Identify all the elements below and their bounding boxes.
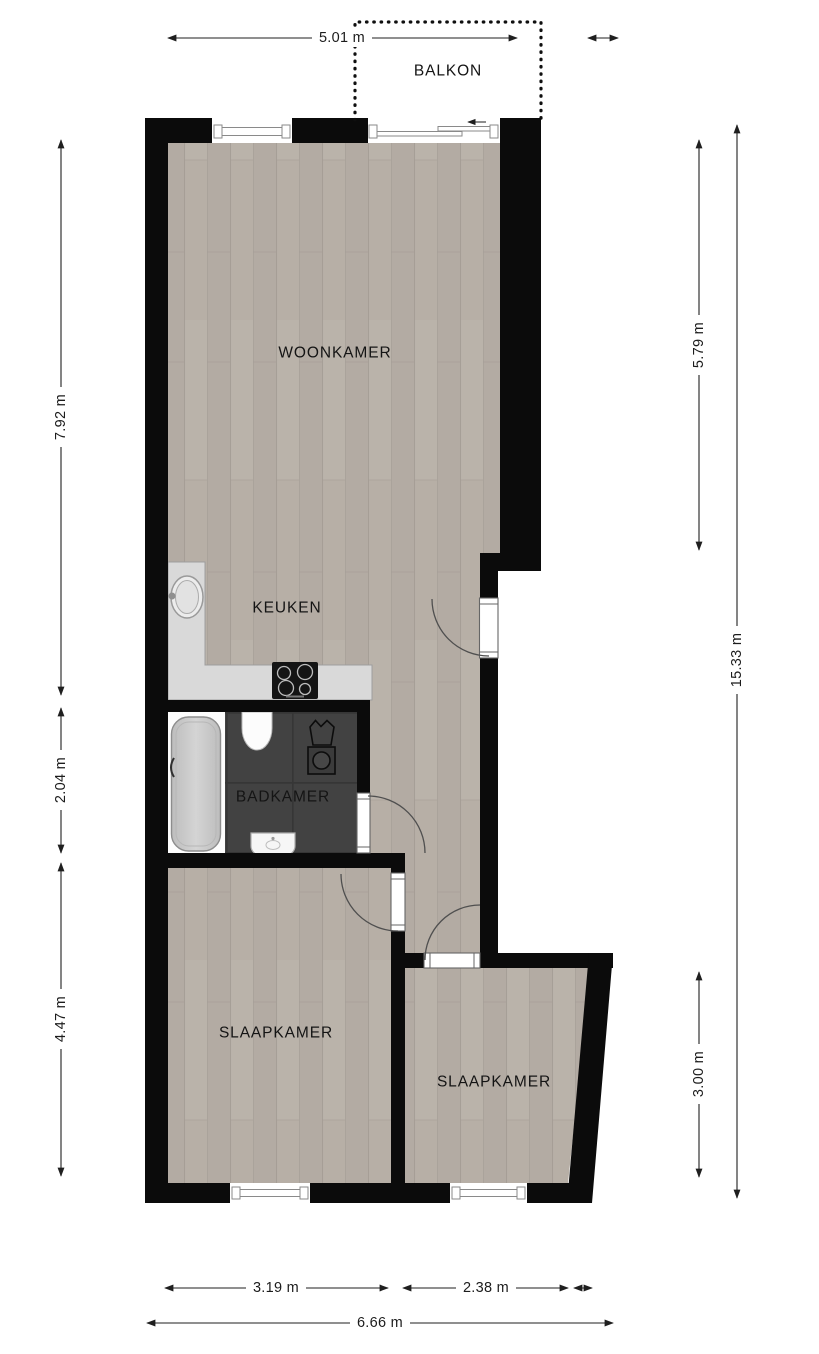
dim-label-total-width: 6.66 m (350, 1314, 410, 1332)
svg-text:3.00 m: 3.00 m (691, 1051, 707, 1097)
svg-text:6.66 m: 6.66 m (357, 1315, 403, 1331)
dim-label-bedroom-left-height: 4.47 m (52, 989, 70, 1049)
wall-kitchen-bath (145, 700, 370, 712)
dim-label-balcony-width: 5.01 m (312, 29, 372, 47)
window (230, 1183, 310, 1203)
floorplan-page: 5.01 m 7.92 m 2.04 m 4.47 m 5.79 m 3.00 … (0, 0, 819, 1354)
svg-text:4.47 m: 4.47 m (53, 996, 69, 1042)
keuken-label: KEUKEN (252, 600, 321, 617)
balkon-label: BALKON (414, 63, 482, 80)
cooktop-icon (272, 662, 318, 699)
slaapkamer-right-label: SLAAPKAMER (437, 1074, 551, 1091)
window (212, 118, 292, 143)
wall-step (480, 553, 541, 571)
toilet-icon (242, 712, 272, 750)
dim-label-living-height: 7.92 m (52, 387, 70, 447)
dim-label-bedroom-left-width: 3.19 m (246, 1279, 306, 1297)
bathtub-icon (171, 717, 221, 851)
svg-text:15.33 m: 15.33 m (729, 633, 745, 688)
washing-machine-icon (308, 747, 335, 774)
wall-left (145, 118, 168, 1203)
washbasin-icon (251, 833, 295, 855)
window (450, 1183, 527, 1203)
badkamer-label: BADKAMER (236, 789, 330, 806)
woonkamer-label: WOONKAMER (278, 345, 391, 362)
wall-bath-bottom (145, 853, 405, 868)
hall-floor-lower (405, 855, 480, 968)
bathroom-fixtures (168, 712, 357, 855)
wall-bath-right (357, 700, 370, 793)
svg-text:5.79 m: 5.79 m (691, 322, 707, 368)
floorplan-canvas: 5.01 m 7.92 m 2.04 m 4.47 m 5.79 m 3.00 … (0, 0, 819, 1354)
dim-label-bedroom-right-width: 2.38 m (456, 1279, 516, 1297)
svg-text:3.19 m: 3.19 m (253, 1280, 299, 1296)
svg-text:2.38 m: 2.38 m (463, 1280, 509, 1296)
slaapkamer-left-label: SLAAPKAMER (219, 1025, 333, 1042)
dim-label-total-height: 15.33 m (728, 626, 746, 694)
hall-floor-upper (370, 712, 480, 855)
svg-text:7.92 m: 7.92 m (53, 394, 69, 440)
balcony-sliding-door (368, 118, 500, 143)
wall-bedroom2-stub (405, 953, 424, 968)
dim-label-bedroom-right-height: 3.00 m (690, 1044, 708, 1104)
svg-text:2.04 m: 2.04 m (53, 757, 69, 803)
dim-label-right-upper: 5.79 m (690, 315, 708, 375)
dim-label-bathroom-height: 2.04 m (52, 750, 70, 810)
wall-right-upper (500, 118, 541, 553)
svg-text:5.01 m: 5.01 m (319, 30, 365, 46)
